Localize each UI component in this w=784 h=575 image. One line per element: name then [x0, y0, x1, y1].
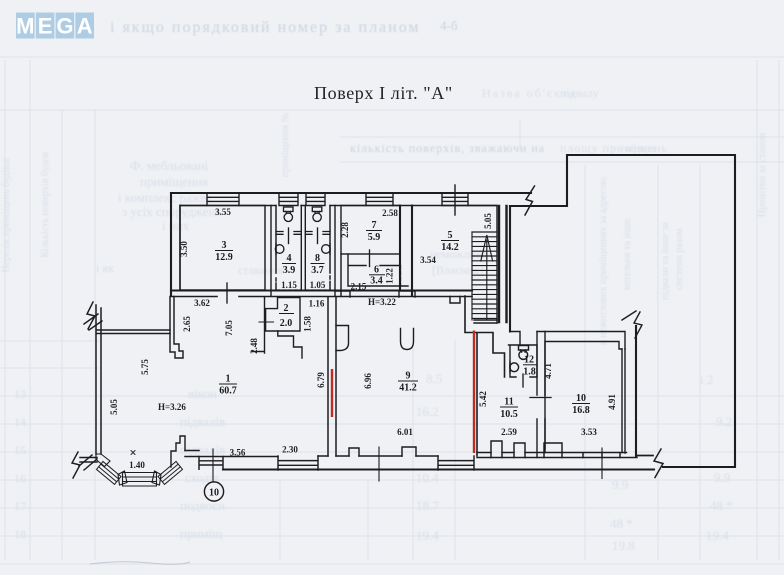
svg-text:4-б: 4-б	[440, 18, 458, 33]
svg-text:6.01: 6.01	[397, 427, 413, 437]
svg-text:18: 18	[14, 527, 26, 541]
svg-text:5.05: 5.05	[109, 399, 119, 415]
svg-text:6.96: 6.96	[363, 373, 373, 389]
svg-text:M: M	[16, 14, 34, 39]
svg-text:4.91: 4.91	[607, 394, 617, 410]
svg-text:2.59: 2.59	[501, 427, 517, 437]
svg-text:2.30: 2.30	[282, 445, 298, 455]
svg-text:12: 12	[524, 355, 534, 366]
svg-text:E: E	[38, 14, 53, 39]
svg-text:3.50: 3.50	[179, 241, 189, 257]
svg-text:17: 17	[14, 499, 26, 513]
svg-text:7: 7	[372, 220, 377, 231]
svg-text:1.8: 1.8	[523, 367, 536, 378]
svg-text:і як: і як	[96, 261, 114, 275]
svg-text:19.8: 19.8	[612, 538, 635, 553]
svg-text:9: 9	[406, 371, 411, 382]
svg-text:3.55: 3.55	[215, 207, 231, 217]
svg-text:підвали та інше за: підвали та інше за	[660, 222, 671, 300]
svg-text:і якщо порядковий номер за пла: і якщо порядковий номер за планом	[110, 19, 421, 36]
svg-text:14: 14	[14, 415, 26, 429]
svg-text:2.0: 2.0	[280, 318, 293, 329]
svg-text:12.9: 12.9	[215, 252, 233, 263]
svg-text:1.15: 1.15	[281, 280, 297, 290]
svg-text:5.75: 5.75	[140, 359, 150, 375]
svg-text:приміщення №: приміщення №	[280, 113, 291, 177]
svg-text:6.79: 6.79	[316, 372, 326, 388]
svg-text:вікон: вікон	[188, 386, 217, 401]
svg-text:5.05: 5.05	[483, 213, 493, 229]
svg-text:5.42: 5.42	[478, 391, 488, 407]
svg-text:котельня та інше: котельня та інше	[622, 218, 633, 290]
svg-text:8.5: 8.5	[426, 371, 442, 386]
svg-text:2: 2	[284, 303, 289, 314]
svg-text:9.9: 9.9	[714, 470, 730, 485]
svg-text:10.5: 10.5	[500, 409, 518, 420]
svg-text:ставання: ставання	[238, 263, 284, 277]
svg-text:7.05: 7.05	[224, 320, 234, 336]
svg-text:Ф. мебльовані: Ф. мебльовані	[130, 158, 209, 173]
svg-text:підвалу: підвалу	[560, 86, 599, 100]
svg-text:14.2: 14.2	[441, 242, 459, 253]
svg-text:48 *: 48 *	[610, 516, 633, 531]
svg-text:2.58: 2.58	[382, 208, 398, 218]
svg-text:10.4: 10.4	[416, 470, 439, 485]
svg-text:3.9: 3.9	[283, 265, 296, 276]
svg-text:в нежитлових приміщеннях за ад: в нежитлових приміщеннях за адресою	[598, 177, 609, 345]
svg-text:3: 3	[222, 240, 227, 251]
svg-text:сходів: сходів	[185, 470, 219, 485]
svg-text:9.2: 9.2	[716, 414, 732, 429]
svg-text:16.2: 16.2	[416, 404, 439, 419]
svg-text:10: 10	[209, 488, 219, 499]
svg-text:16.8: 16.8	[572, 405, 590, 416]
svg-text:2.48: 2.48	[249, 338, 259, 354]
svg-text:3.53: 3.53	[581, 427, 597, 437]
svg-text:Перелік приміщень будівлі: Перелік приміщень будівлі	[1, 157, 12, 272]
svg-text:2.28: 2.28	[340, 222, 350, 238]
svg-text:19.4: 19.4	[706, 528, 729, 543]
svg-text:19.4: 19.4	[416, 528, 439, 543]
svg-text:10: 10	[576, 393, 586, 404]
svg-text:4: 4	[287, 253, 292, 264]
svg-text:48 *: 48 *	[710, 498, 733, 513]
svg-text:приміщення: приміщення	[140, 174, 208, 189]
svg-text:11: 11	[504, 397, 513, 408]
svg-text:41.2: 41.2	[399, 383, 417, 394]
svg-text:1.40: 1.40	[129, 460, 145, 470]
svg-text:системи разом: системи разом	[674, 228, 685, 290]
svg-text:9.9: 9.9	[612, 477, 628, 492]
svg-text:підвалів: підвалів	[180, 414, 225, 429]
svg-text:Кількість поверхів будов: Кількість поверхів будов	[40, 152, 51, 258]
svg-text:G: G	[56, 14, 73, 39]
svg-text:3.7: 3.7	[311, 265, 324, 276]
svg-text:кількість поверхів, зважаючи н: кількість поверхів, зважаючи на	[350, 141, 545, 155]
svg-text:підвал: підвал	[625, 143, 656, 155]
svg-text:5: 5	[448, 230, 453, 241]
svg-text:приміщ: приміщ	[180, 526, 222, 541]
svg-text:60.7: 60.7	[219, 386, 237, 397]
svg-text:3.4: 3.4	[370, 276, 383, 287]
svg-text:3.54: 3.54	[420, 255, 436, 265]
svg-text:1.22: 1.22	[385, 268, 395, 284]
svg-text:5.9: 5.9	[368, 232, 381, 243]
svg-text:і них: і них	[162, 218, 190, 233]
svg-text:1.58: 1.58	[303, 316, 313, 332]
svg-text:16: 16	[14, 471, 26, 485]
svg-text:підвалів: підвалів	[180, 442, 225, 457]
svg-text:Н=3.22: Н=3.22	[368, 297, 396, 307]
svg-text:Н=3.26: Н=3.26	[158, 402, 186, 412]
svg-text:і 2: і 2	[700, 372, 713, 387]
svg-text:3.62: 3.62	[194, 298, 210, 308]
svg-text:2.15: 2.15	[351, 282, 367, 292]
svg-text:2.65: 2.65	[182, 316, 192, 332]
svg-text:18.7: 18.7	[416, 498, 439, 513]
svg-text:15: 15	[14, 443, 26, 457]
svg-text:6: 6	[374, 265, 379, 276]
svg-text:4.71: 4.71	[543, 363, 553, 379]
svg-text:8: 8	[315, 253, 320, 264]
svg-text:1: 1	[226, 374, 231, 385]
svg-text:A: A	[77, 14, 93, 39]
svg-text:Поверх І літ. "А": Поверх І літ. "А"	[314, 83, 453, 103]
svg-text:1.16: 1.16	[309, 299, 325, 309]
svg-text:3.56: 3.56	[230, 448, 246, 458]
svg-text:13: 13	[14, 387, 26, 401]
svg-text:Примітки за станом: Примітки за станом	[757, 132, 768, 217]
svg-text:1.05: 1.05	[310, 280, 326, 290]
